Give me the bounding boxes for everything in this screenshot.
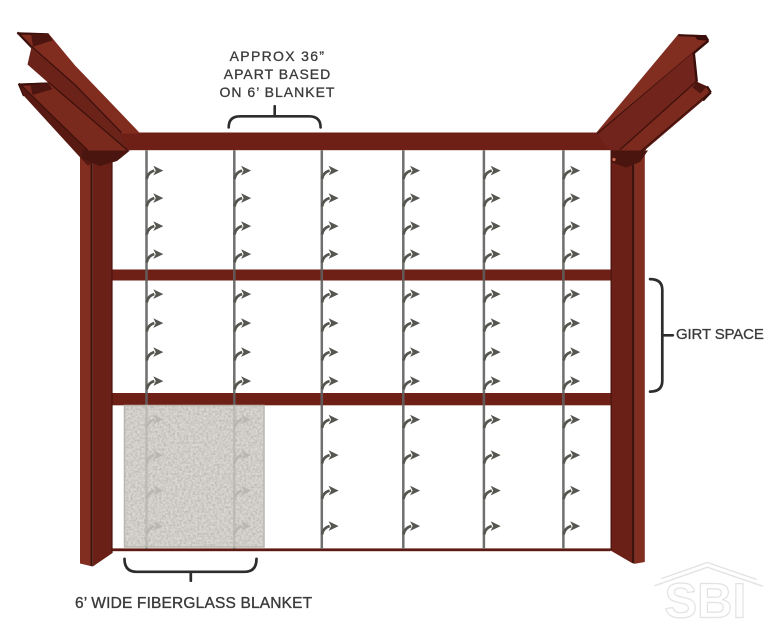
svg-text:SBI: SBI (665, 575, 747, 629)
svg-text:ON 6’ BLANKET: ON 6’ BLANKET (220, 84, 336, 100)
svg-text:APART BASED: APART BASED (224, 66, 331, 82)
svg-text:APPROX 36”: APPROX 36” (230, 48, 326, 64)
svg-text:6’ WIDE FIBERGLASS BLANKET: 6’ WIDE FIBERGLASS BLANKET (75, 595, 313, 612)
svg-text:GIRT SPACE: GIRT SPACE (676, 326, 764, 343)
